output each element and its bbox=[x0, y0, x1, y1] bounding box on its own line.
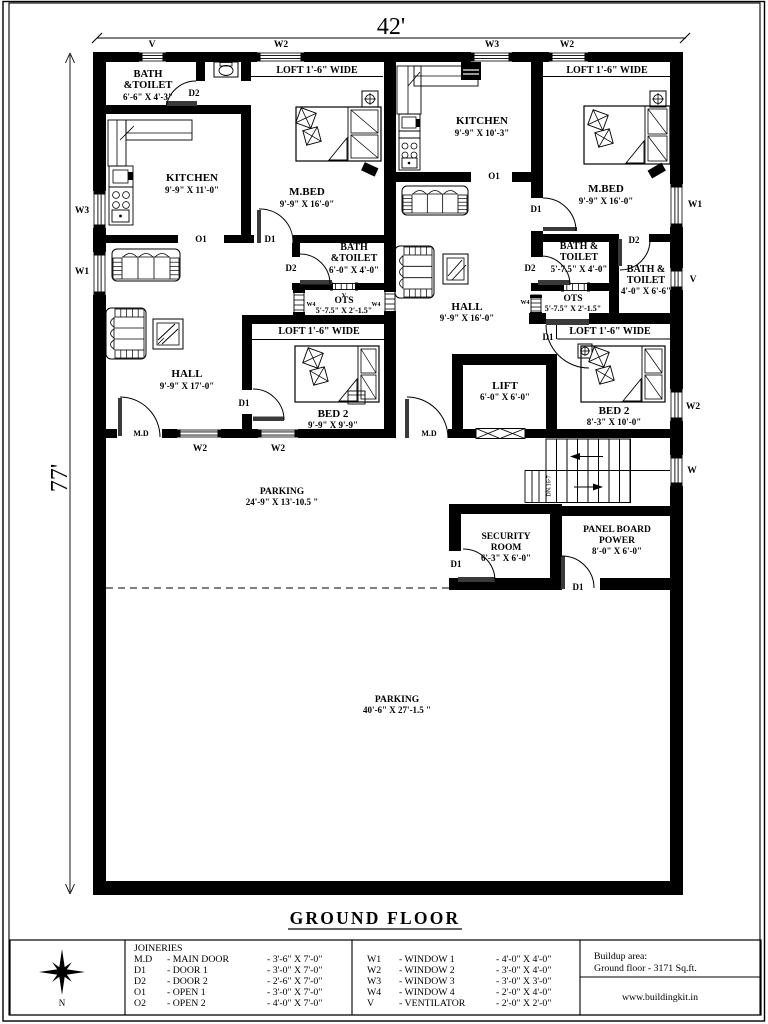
svg-text:- 4'-0" X 4'-0": - 4'-0" X 4'-0" bbox=[496, 954, 551, 965]
svg-text:TOILET: TOILET bbox=[627, 275, 665, 286]
svg-text:- 3'-0" X 4'-0": - 3'-0" X 4'-0" bbox=[496, 965, 551, 976]
svg-text:9'-9" X 16'-0": 9'-9" X 16'-0" bbox=[440, 313, 495, 323]
svg-text:D2: D2 bbox=[525, 263, 536, 273]
svg-text:- 3'-6" X 7'-0": - 3'-6" X 7'-0" bbox=[267, 954, 322, 965]
svg-text:HALL: HALL bbox=[451, 301, 482, 313]
svg-text:- 4'-0" X 7'-0": - 4'-0" X 7'-0" bbox=[267, 998, 322, 1009]
svg-text:BED 2: BED 2 bbox=[318, 408, 349, 420]
svg-text:LOFT 1'-6" WIDE: LOFT 1'-6" WIDE bbox=[566, 65, 648, 76]
svg-text:42': 42' bbox=[377, 14, 405, 40]
svg-text:5'-7.5" X 4'-0": 5'-7.5" X 4'-0" bbox=[551, 264, 608, 274]
svg-text:LOFT 1'-6" WIDE: LOFT 1'-6" WIDE bbox=[569, 326, 651, 337]
svg-text:JOINERIES: JOINERIES bbox=[134, 943, 182, 954]
svg-text:6'-0" X 6'-0": 6'-0" X 6'-0" bbox=[480, 392, 530, 402]
svg-text:- WINDOW 2: - WINDOW 2 bbox=[399, 965, 455, 976]
svg-text:- 3'-0" X 3'-0": - 3'-0" X 3'-0" bbox=[496, 976, 551, 987]
svg-text:PANEL BOARD: PANEL BOARD bbox=[583, 525, 651, 535]
svg-text:- OPEN 1: - OPEN 1 bbox=[167, 987, 206, 998]
svg-text:W4: W4 bbox=[521, 300, 530, 306]
svg-text:9'-9" X 10'-3": 9'-9" X 10'-3" bbox=[455, 128, 510, 138]
svg-text:N: N bbox=[59, 998, 66, 1008]
svg-text:BATH &: BATH & bbox=[627, 264, 665, 275]
svg-text:M.D: M.D bbox=[134, 954, 152, 965]
svg-text:6'-6" X 4'-3": 6'-6" X 4'-3" bbox=[123, 92, 173, 102]
svg-text:D2: D2 bbox=[286, 263, 297, 273]
svg-text:W4: W4 bbox=[367, 987, 381, 998]
svg-text:O2: O2 bbox=[134, 998, 146, 1009]
svg-text:9'-9" X 16'-0": 9'-9" X 16'-0" bbox=[579, 196, 634, 206]
svg-text:LOFT 1'-6" WIDE: LOFT 1'-6" WIDE bbox=[278, 326, 360, 337]
svg-text:- DOOR 2: - DOOR 2 bbox=[167, 976, 208, 987]
svg-text:V: V bbox=[367, 998, 374, 1009]
svg-text:D2: D2 bbox=[629, 235, 640, 245]
svg-text:- 2'-0" X 4'-0": - 2'-0" X 4'-0" bbox=[496, 987, 551, 998]
svg-text:LOFT 1'-6" WIDE: LOFT 1'-6" WIDE bbox=[276, 65, 358, 76]
svg-text:W2: W2 bbox=[193, 444, 208, 454]
svg-text:W3: W3 bbox=[485, 40, 500, 50]
svg-text:OTS: OTS bbox=[563, 294, 582, 304]
svg-text:- VENTILATOR: - VENTILATOR bbox=[399, 998, 466, 1009]
svg-text:www.buildingkit.in: www.buildingkit.in bbox=[622, 992, 698, 1003]
svg-text:D1: D1 bbox=[451, 559, 462, 569]
svg-text:- 3'-0" X 7'-0": - 3'-0" X 7'-0" bbox=[267, 987, 322, 998]
svg-text:ROOM: ROOM bbox=[491, 543, 522, 553]
svg-text:6'-3" X 6'-0": 6'-3" X 6'-0" bbox=[481, 553, 531, 563]
svg-text:BATH: BATH bbox=[134, 69, 163, 80]
svg-text:9'-9" X 16'-0": 9'-9" X 16'-0" bbox=[280, 199, 335, 209]
svg-text:- 2'-0" X 2'-0": - 2'-0" X 2'-0" bbox=[496, 998, 551, 1009]
svg-text:8'-3" X 10'-0": 8'-3" X 10'-0" bbox=[587, 417, 642, 427]
svg-text:W1: W1 bbox=[75, 267, 90, 277]
svg-text:9'-9" X 17'-0": 9'-9" X 17'-0" bbox=[160, 381, 215, 391]
svg-text:24'-9" X 13'-10.5 ": 24'-9" X 13'-10.5 " bbox=[246, 497, 319, 507]
svg-text:W2: W2 bbox=[271, 444, 286, 454]
svg-text:W2: W2 bbox=[274, 40, 289, 50]
svg-text:Ground floor - 3171 Sq.ft.: Ground floor - 3171 Sq.ft. bbox=[594, 963, 697, 974]
svg-text:8'-0" X 6'-0": 8'-0" X 6'-0" bbox=[592, 546, 642, 556]
svg-text:PARKING: PARKING bbox=[375, 695, 420, 705]
svg-text:M.BED: M.BED bbox=[289, 186, 325, 198]
svg-text:77': 77' bbox=[47, 464, 73, 492]
svg-text:D1: D1 bbox=[531, 204, 542, 214]
svg-text:- WINDOW 3: - WINDOW 3 bbox=[399, 976, 455, 987]
svg-text:SECURITY: SECURITY bbox=[481, 532, 530, 542]
svg-text:W4: W4 bbox=[372, 302, 381, 308]
svg-text:6'-0" X 4'-0": 6'-0" X 4'-0" bbox=[329, 265, 379, 275]
svg-text:- 2'-6" X 7'-0": - 2'-6" X 7'-0" bbox=[267, 976, 322, 987]
svg-text:KITCHEN: KITCHEN bbox=[456, 115, 508, 127]
svg-text:W4: W4 bbox=[307, 302, 316, 308]
svg-text:M.D: M.D bbox=[133, 429, 149, 438]
svg-text:O1: O1 bbox=[488, 171, 500, 181]
svg-text:4'-0" X 6'-6": 4'-0" X 6'-6" bbox=[621, 286, 671, 296]
svg-text:PARKING: PARKING bbox=[260, 487, 305, 497]
svg-text:W1: W1 bbox=[367, 954, 381, 965]
svg-text:M.BED: M.BED bbox=[588, 183, 624, 195]
svg-text:- WINDOW 1: - WINDOW 1 bbox=[399, 954, 455, 965]
svg-text:M.D: M.D bbox=[421, 429, 437, 438]
svg-text:9'-9" X 11'-0": 9'-9" X 11'-0" bbox=[165, 185, 219, 195]
svg-text:W1: W1 bbox=[688, 200, 703, 210]
svg-text:- OPEN 2: - OPEN 2 bbox=[167, 998, 206, 1009]
svg-text:Buildup area:: Buildup area: bbox=[594, 951, 647, 962]
svg-text:W2: W2 bbox=[560, 40, 575, 50]
svg-text:O1: O1 bbox=[134, 987, 146, 998]
svg-text:HALL: HALL bbox=[171, 368, 202, 380]
svg-text:TOILET: TOILET bbox=[560, 252, 598, 263]
svg-text:W2: W2 bbox=[367, 965, 381, 976]
svg-text:BATH &: BATH & bbox=[560, 241, 598, 252]
svg-text:40'-6" X 27'-1.5 ": 40'-6" X 27'-1.5 " bbox=[363, 705, 431, 715]
svg-text:D1: D1 bbox=[573, 582, 584, 592]
svg-text:- 3'-0" X 7'-0": - 3'-0" X 7'-0" bbox=[267, 965, 322, 976]
svg-text:V: V bbox=[149, 40, 156, 50]
svg-text:- DOOR 1: - DOOR 1 bbox=[167, 965, 208, 976]
svg-text:W3: W3 bbox=[75, 206, 90, 216]
svg-text:BED 2: BED 2 bbox=[599, 405, 630, 417]
svg-text:- WINDOW 4: - WINDOW 4 bbox=[399, 987, 455, 998]
svg-text:D2: D2 bbox=[134, 976, 146, 987]
svg-text:W2: W2 bbox=[686, 402, 701, 412]
svg-text:LIFT: LIFT bbox=[492, 380, 518, 392]
svg-text:V: V bbox=[342, 293, 347, 299]
svg-text:- MAIN DOOR: - MAIN DOOR bbox=[167, 954, 230, 965]
svg-text:D1: D1 bbox=[239, 398, 250, 408]
svg-text:POWER: POWER bbox=[599, 536, 635, 546]
svg-text:5'-7.5" X 2'-1.5": 5'-7.5" X 2'-1.5" bbox=[545, 304, 601, 313]
svg-text:D1: D1 bbox=[265, 234, 276, 244]
svg-text:D1: D1 bbox=[543, 332, 554, 342]
svg-text:O1: O1 bbox=[195, 234, 207, 244]
svg-text:D2: D2 bbox=[189, 88, 200, 98]
svg-text:9'-9" X 9'-9": 9'-9" X 9'-9" bbox=[308, 420, 358, 430]
svg-text:&TOILET: &TOILET bbox=[124, 80, 173, 91]
svg-text:DN.16-7: DN.16-7 bbox=[547, 475, 553, 496]
svg-text:KITCHEN: KITCHEN bbox=[166, 172, 218, 184]
svg-text:&TOILET: &TOILET bbox=[331, 253, 378, 264]
svg-text:W: W bbox=[687, 466, 697, 476]
svg-text:5'-7.5" X 2'-1.5": 5'-7.5" X 2'-1.5" bbox=[316, 306, 372, 315]
svg-text:V: V bbox=[690, 275, 697, 285]
svg-text:GROUND FLOOR: GROUND FLOOR bbox=[290, 908, 461, 928]
svg-text:BATH: BATH bbox=[340, 242, 368, 253]
svg-text:D1: D1 bbox=[134, 965, 146, 976]
svg-text:W3: W3 bbox=[367, 976, 381, 987]
